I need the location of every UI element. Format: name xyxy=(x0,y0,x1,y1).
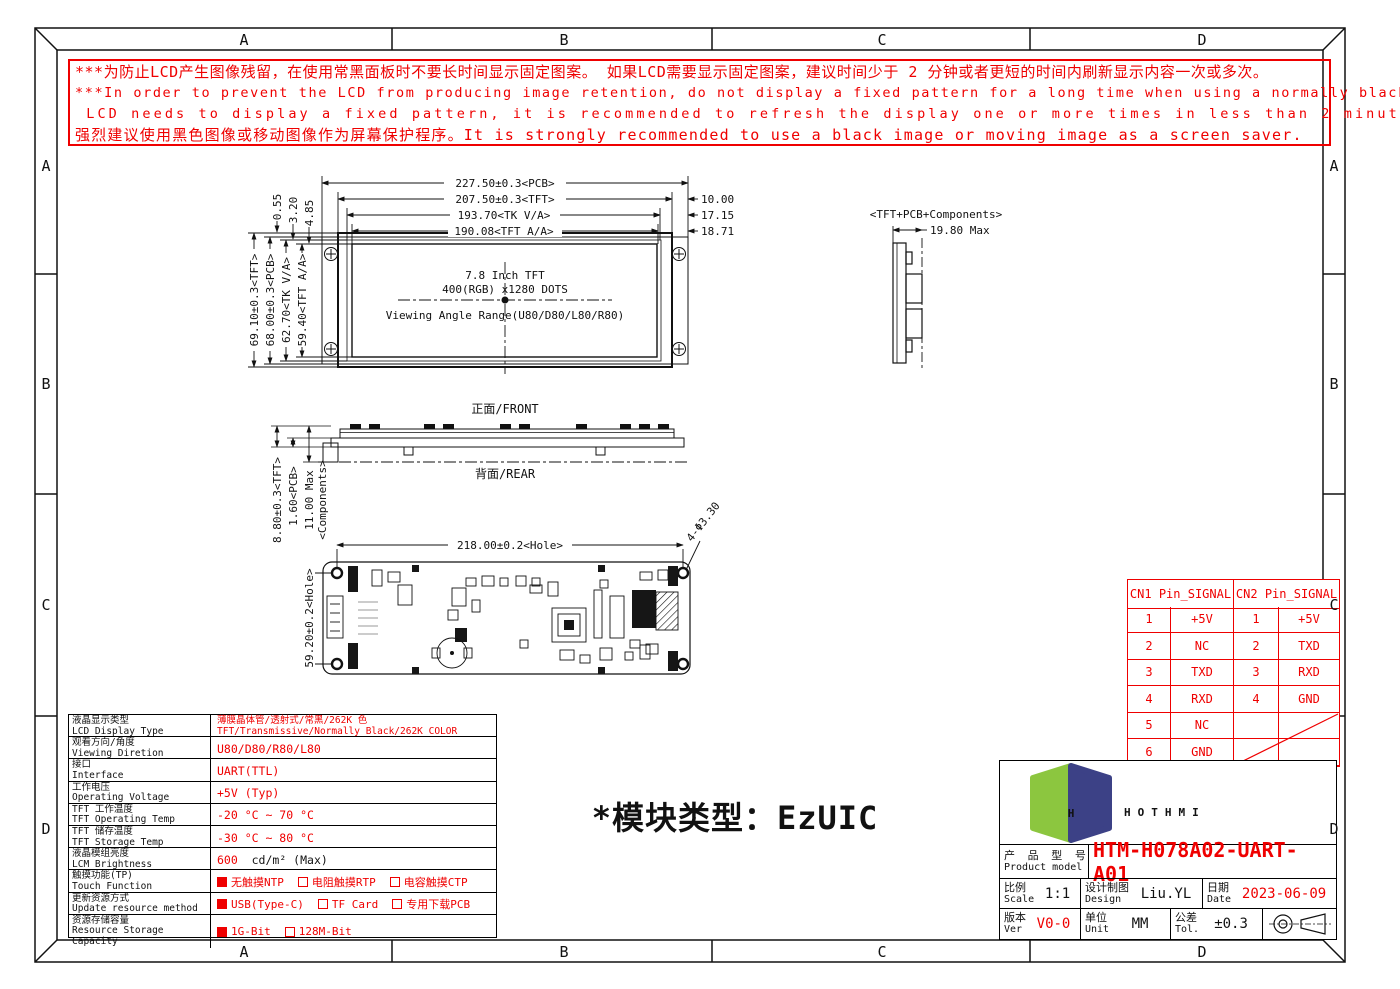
version-value: V0-0 xyxy=(1031,916,1076,932)
pin-cell: 1 xyxy=(1234,607,1279,634)
spec-value: USB(Type-C)TF Card专用下载PCB xyxy=(211,893,496,916)
spec-label-en: LCD Display Type xyxy=(72,727,207,738)
zone-letter-top-B: B xyxy=(552,31,576,49)
spec-row: TFT 储存温度TFT Storage Temp-30 °C ~ 80 °C xyxy=(69,826,496,848)
front-view-dimensions xyxy=(248,176,698,367)
zone-letter-top-D: D xyxy=(1190,31,1214,49)
dim-label: <Components> xyxy=(316,460,329,540)
dim-label: 59.20±0.2<Hole> xyxy=(303,568,316,668)
spec-label-en: Interface xyxy=(72,771,207,782)
pin-cell: GND xyxy=(1279,686,1339,713)
unit-cell: 单位Unit MM xyxy=(1080,909,1170,939)
spec-value: UART(TTL) xyxy=(211,759,496,782)
spec-value: 无触摸NTP电阻触摸RTP电容触摸CTP xyxy=(211,870,496,893)
pin-cell: 2 xyxy=(1234,633,1279,660)
pcb-components xyxy=(327,565,678,674)
spec-row: TFT 工作温度TFT Operating Temp-20 °C ~ 70 °C xyxy=(69,804,496,826)
dim-label: 207.50±0.3<TFT> xyxy=(455,193,555,206)
warning-line: ***为防止LCD产生图像残留，在使用常黑面板时不要长时间显示固定图案。 如果L… xyxy=(70,62,1329,83)
pin-cell: RXD xyxy=(1171,686,1234,713)
front-view-labels: 227.50±0.3<PCB> 207.50±0.3<TFT> 193.70<T… xyxy=(248,177,734,351)
dim-label: 11.00 Max xyxy=(303,470,316,530)
unit-value: MM xyxy=(1114,916,1166,932)
third-angle-projection-icon xyxy=(1269,910,1331,938)
zone-letter-right-C: C xyxy=(1322,596,1346,614)
spec-row: 观看方向/角度Viewing DiretionU80/D80/R80/L80 xyxy=(69,737,496,759)
dim-label: 10.00 xyxy=(701,193,734,206)
pin-cell: TXD xyxy=(1171,660,1234,687)
profile-view xyxy=(271,424,690,462)
warning-box: ***为防止LCD产生图像残留，在使用常黑面板时不要长时间显示固定图案。 如果L… xyxy=(68,59,1331,146)
pin-cell xyxy=(1279,713,1339,740)
dim-label: 1.60<PCB> xyxy=(287,466,300,526)
pin-cell: 3 xyxy=(1128,660,1171,687)
zone-letter-top-A: A xyxy=(232,31,256,49)
date-cell: 日期Date 2023-06-09 xyxy=(1202,879,1336,908)
spec-label: 观看方向/角度Viewing Diretion xyxy=(69,737,211,760)
datasheet-page: 227.50±0.3<PCB> 207.50±0.3<TFT> 193.70<T… xyxy=(0,0,1400,989)
spec-label: 资源存储容量Resource Storage Capacity xyxy=(69,915,211,949)
spec-label-en: Resource Storage Capacity xyxy=(72,926,207,947)
product-model: HTM-H078A02-UART-A01 xyxy=(1088,845,1336,878)
pin-cell: TXD xyxy=(1279,633,1339,660)
checkbox-label: TF Card xyxy=(332,898,378,911)
spec-value: -20 °C ~ 70 °C xyxy=(211,804,496,827)
checkbox-checked xyxy=(217,927,227,937)
display-size-label: 7.8 Inch TFT xyxy=(465,269,545,282)
spec-value-line: 薄膜晶体管/透射式/常黑/262K 色 xyxy=(217,716,367,727)
dim-label: 0.55 xyxy=(271,194,284,221)
spec-label-en: Touch Function xyxy=(72,882,207,893)
pin-cell: NC xyxy=(1171,633,1234,660)
zone-letter-right-B: B xyxy=(1322,375,1346,393)
spec-value-line: TFT/Transmissive/Normally Black/262K COL… xyxy=(217,727,457,738)
top-components xyxy=(350,424,669,429)
checkbox-label: 专用下载PCB xyxy=(406,896,470,912)
hothmi-logo: H HOTHMI xyxy=(1000,762,1336,844)
rear-label: 背面/REAR xyxy=(475,467,536,481)
spec-label: 触摸功能(TP)Touch Function xyxy=(69,870,211,893)
module-type-note: *模块类型：EzUIC xyxy=(575,793,895,839)
checkbox-unchecked xyxy=(298,877,308,887)
spec-label: 液晶显示类型LCD Display Type xyxy=(69,715,211,738)
svg-text:H: H xyxy=(1068,807,1075,820)
spec-table: 液晶显示类型LCD Display Type薄膜晶体管/透射式/常黑/262K … xyxy=(68,714,497,938)
checkbox-label: 电阻触摸RTP xyxy=(312,874,376,890)
pin-cell: 2 xyxy=(1128,633,1171,660)
zone-letter-right-A: A xyxy=(1322,157,1346,175)
pin-cell: RXD xyxy=(1279,660,1339,687)
zone-letter-bottom-A: A xyxy=(232,943,256,961)
zone-letter-left-A: A xyxy=(34,157,58,175)
pcb-view xyxy=(303,541,700,674)
spec-label: 液晶模组亮度LCM Brightness xyxy=(69,848,211,871)
viewing-angle-label: Viewing Angle Range(U80/D80/L80/R80) xyxy=(386,309,624,322)
zone-letter-left-C: C xyxy=(34,596,58,614)
dim-label: 227.50±0.3<PCB> xyxy=(455,177,555,190)
pin-cell xyxy=(1234,713,1279,740)
spec-label-en: TFT Storage Temp xyxy=(72,838,207,849)
tolerance-value: ±0.3 xyxy=(1204,916,1258,932)
spec-value: U80/D80/R80/L80 xyxy=(211,737,496,760)
spec-value: +5V (Typ) xyxy=(211,782,496,805)
dim-label: 190.08<TFT A/A> xyxy=(454,225,554,238)
zone-letter-right-D: D xyxy=(1322,820,1346,838)
zone-letter-bottom-B: B xyxy=(552,943,576,961)
spec-row: 液晶模组亮度LCM Brightness600 cd/m² (Max) xyxy=(69,848,496,870)
checkbox-unchecked xyxy=(318,899,328,909)
spec-row: 更新资源方式Update resource methodUSB(Type-C)T… xyxy=(69,893,496,915)
dim-label: 4.85 xyxy=(303,200,316,227)
tolerance-cell: 公差Tol. ±0.3 xyxy=(1170,909,1262,939)
pin-cell: +5V xyxy=(1171,607,1234,634)
design-value: Liu.YL xyxy=(1134,886,1198,902)
pin-cell: 5 xyxy=(1128,713,1171,740)
spec-label: 工作电压Operating Voltage xyxy=(69,782,211,805)
pin-cell: 4 xyxy=(1128,686,1171,713)
title-block: H HOTHMI 产 品 型 号 Product model HTM-H078A… xyxy=(999,760,1337,940)
checkbox-checked xyxy=(217,877,227,887)
product-model-label: 产 品 型 号 Product model xyxy=(1000,845,1088,878)
screw-icon xyxy=(325,248,686,356)
spec-label: TFT 工作温度TFT Operating Temp xyxy=(69,804,211,827)
dim-label: 68.00±0.3<PCB> xyxy=(264,253,277,346)
pin-cell: 3 xyxy=(1234,660,1279,687)
pcb-view-labels: 218.00±0.2<Hole> 59.20±0.2<Hole> 4-Φ3.30 xyxy=(303,500,723,670)
checkbox-unchecked xyxy=(392,899,402,909)
spec-label-en: Viewing Diretion xyxy=(72,749,207,760)
spec-label: TFT 储存温度TFT Storage Temp xyxy=(69,826,211,849)
checkbox-label: 128M-Bit xyxy=(299,925,352,938)
spec-row: 工作电压Operating Voltage+5V (Typ) xyxy=(69,782,496,804)
warning-line: LCD needs to display a fixed pattern, it… xyxy=(70,104,1329,125)
pin-table: CN1 Pin_SIGNALCN2 Pin_SIGNAL1+5V1+5V2NC2… xyxy=(1127,579,1340,767)
checkbox-label: 电容触摸CTP xyxy=(404,874,468,890)
dim-label: 4-Φ3.30 xyxy=(684,500,723,545)
spec-label-en: Operating Voltage xyxy=(72,793,207,804)
ver-unit-tol-row: 版本Ver V0-0 单位Unit MM 公差Tol. ±0.3 xyxy=(1000,908,1336,939)
dim-label: 3.20 xyxy=(287,197,300,224)
zone-letter-bottom-C: C xyxy=(870,943,894,961)
date-value: 2023-06-09 xyxy=(1236,886,1332,902)
checkbox-unchecked xyxy=(390,877,400,887)
checkbox-unchecked xyxy=(285,927,295,937)
dim-label: 18.71 xyxy=(701,225,734,238)
resolution-label: 400(RGB) x1280 DOTS xyxy=(442,283,568,296)
checkbox-label: 1G-Bit xyxy=(231,925,271,938)
checkbox-label: 无触摸NTP xyxy=(231,874,284,890)
warning-line: ***In order to prevent the LCD from prod… xyxy=(70,83,1329,104)
checkbox-checked xyxy=(217,899,227,909)
spec-label-en: LCM Brightness xyxy=(72,860,207,871)
spec-label: 更新资源方式Update resource method xyxy=(69,893,211,916)
dim-label: 59.40<TFT A/A> xyxy=(296,253,309,346)
dim-label: 69.10±0.3<TFT> xyxy=(248,253,261,346)
scale-design-date-row: 比例Scale 1:1 设计制图Design Liu.YL 日期Date 202… xyxy=(1000,878,1336,908)
projection-symbol-cell xyxy=(1262,909,1336,939)
pin-cell: 4 xyxy=(1234,686,1279,713)
dim-label: 193.70<TK V/A> xyxy=(458,209,551,222)
dim-label: 218.00±0.2<Hole> xyxy=(457,539,563,552)
spec-value: 薄膜晶体管/透射式/常黑/262K 色TFT/Transmissive/Norm… xyxy=(211,715,496,738)
zone-letter-left-D: D xyxy=(34,820,58,838)
warning-line: 强烈建议使用黑色图像或移动图像作为屏幕保护程序。It is strongly r… xyxy=(70,125,1329,146)
side-view xyxy=(893,226,927,368)
spec-label: 接口Interface xyxy=(69,759,211,782)
pin-cell: 1 xyxy=(1128,607,1171,634)
zone-letter-bottom-D: D xyxy=(1190,943,1214,961)
scale-value: 1:1 xyxy=(1039,886,1076,902)
zone-letter-left-B: B xyxy=(34,375,58,393)
pin-table-grid: CN1 Pin_SIGNALCN2 Pin_SIGNAL1+5V1+5V2NC2… xyxy=(1128,580,1339,766)
dim-label: 19.80 Max xyxy=(930,224,990,237)
dim-label: 8.80±0.3<TFT> xyxy=(271,457,284,543)
checkbox-label: USB(Type-C) xyxy=(231,898,304,911)
spec-row: 液晶显示类型LCD Display Type薄膜晶体管/透射式/常黑/262K … xyxy=(69,715,496,737)
product-model-row: 产 品 型 号 Product model HTM-H078A02-UART-A… xyxy=(1000,844,1336,878)
side-view-label: <TFT+PCB+Components> xyxy=(870,208,1003,221)
logo-row: H HOTHMI xyxy=(1000,761,1336,844)
spec-row: 接口InterfaceUART(TTL) xyxy=(69,759,496,781)
logo-mark-icon: H xyxy=(1033,766,1109,840)
spec-label-en: Update resource method xyxy=(72,904,207,915)
spec-row: 触摸功能(TP)Touch Function无触摸NTP电阻触摸RTP电容触摸C… xyxy=(69,870,496,892)
spec-label-cn: TFT 储存温度 xyxy=(72,827,207,838)
spec-label-en: TFT Operating Temp xyxy=(72,815,207,826)
scale-cell: 比例Scale 1:1 xyxy=(1000,879,1080,908)
design-cell: 设计制图Design Liu.YL xyxy=(1080,879,1202,908)
spec-row: 资源存储容量Resource Storage Capacity1G-Bit128… xyxy=(69,915,496,937)
version-cell: 版本Ver V0-0 xyxy=(1000,909,1080,939)
pin-cell: NC xyxy=(1171,713,1234,740)
spec-label-cn: 液晶显示类型 xyxy=(72,716,207,727)
spec-value: -30 °C ~ 80 °C xyxy=(211,826,496,849)
dim-label: 62.70<TK V/A> xyxy=(280,257,293,343)
front-view xyxy=(322,233,688,374)
pin-table-header: CN1 Pin_SIGNAL xyxy=(1128,580,1234,609)
dim-label: 17.15 xyxy=(701,209,734,222)
front-label: 正面/FRONT xyxy=(471,402,538,416)
spec-value: 600 cd/m² (Max) xyxy=(211,848,496,871)
brand-text: HOTHMI xyxy=(1124,806,1206,819)
zone-letter-top-C: C xyxy=(870,31,894,49)
